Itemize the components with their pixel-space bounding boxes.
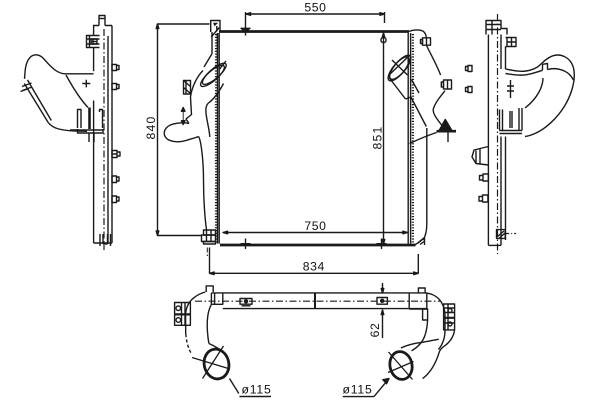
svg-text:ø115: ø115: [242, 383, 272, 397]
svg-text:851: 851: [371, 126, 385, 150]
svg-text:834: 834: [303, 260, 325, 274]
svg-text:ø115: ø115: [343, 383, 373, 397]
svg-text:550: 550: [304, 1, 326, 15]
svg-text:750: 750: [304, 219, 326, 233]
svg-text:840: 840: [144, 116, 158, 140]
svg-text:62: 62: [368, 323, 382, 338]
